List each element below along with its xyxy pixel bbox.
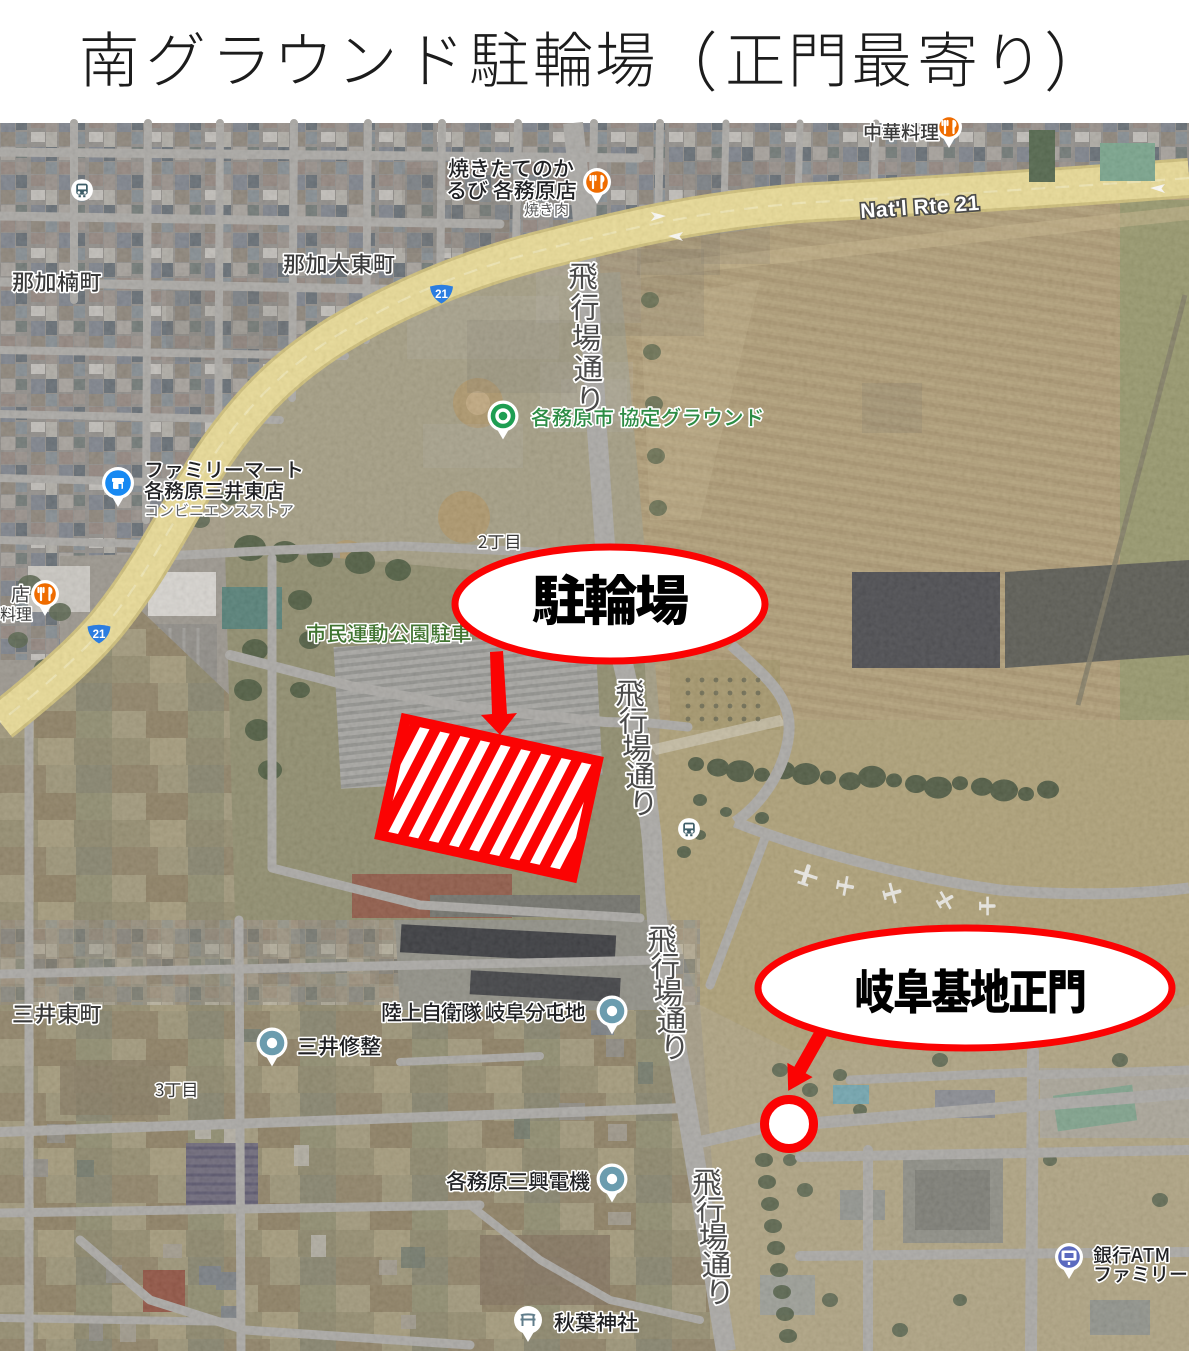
svg-text:21: 21	[93, 629, 106, 641]
svg-text:21: 21	[435, 289, 448, 301]
